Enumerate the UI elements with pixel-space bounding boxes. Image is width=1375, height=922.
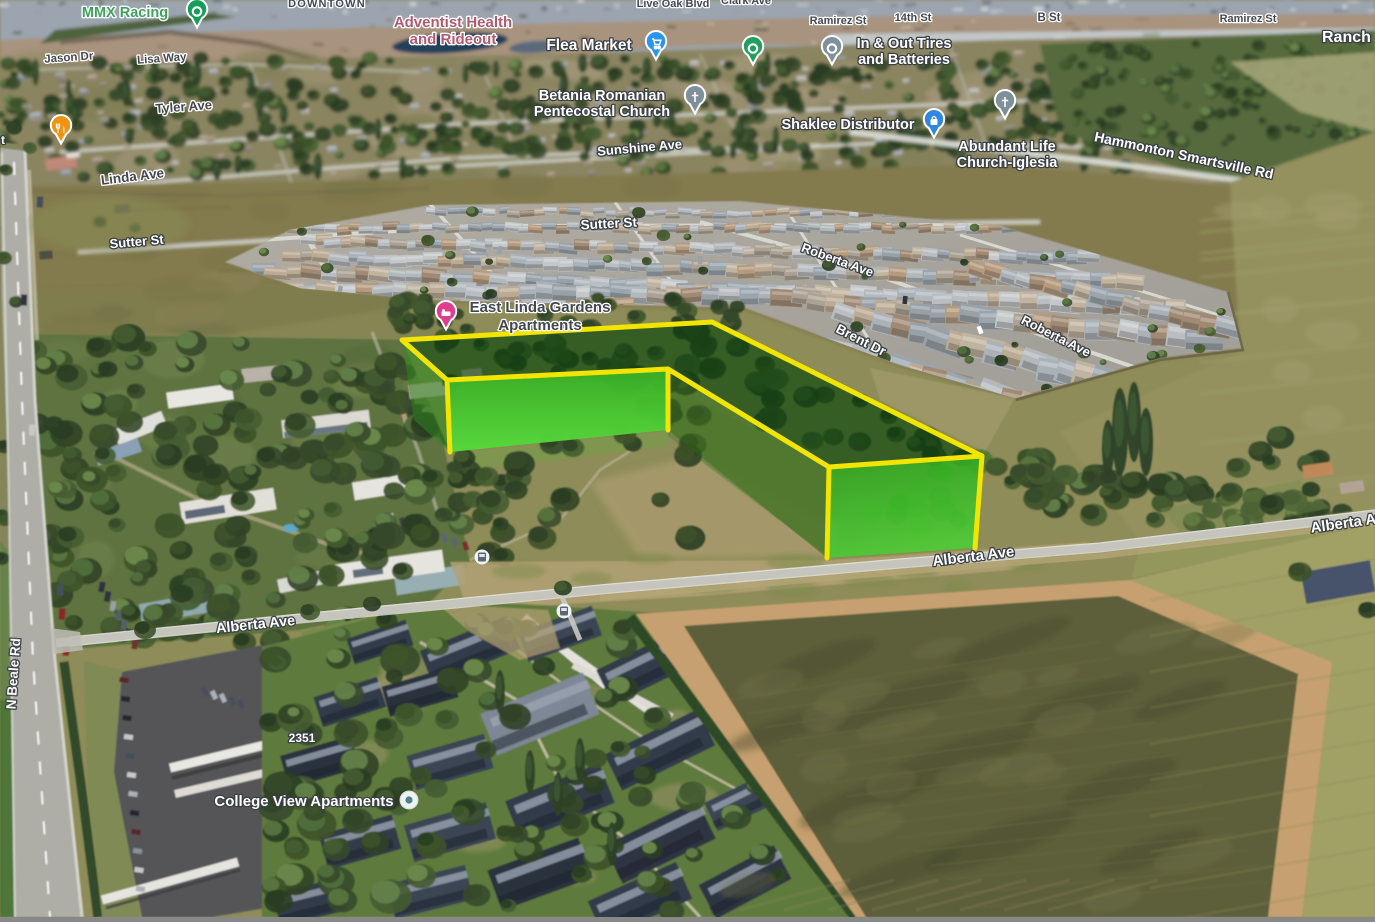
svg-text:College View Apartments: College View Apartments: [214, 793, 393, 810]
svg-text:and Batteries: and Batteries: [858, 52, 950, 68]
svg-text:14th St: 14th St: [895, 12, 932, 24]
svg-text:Apartments: Apartments: [498, 317, 581, 334]
svg-text:MMX Racing: MMX Racing: [82, 5, 168, 21]
svg-text:2351: 2351: [289, 731, 316, 745]
svg-text:DOWNTOWN: DOWNTOWN: [288, 0, 366, 10]
svg-text:Betania Romanian: Betania Romanian: [539, 88, 666, 104]
svg-text:Sutter St: Sutter St: [580, 215, 637, 233]
svg-text:East Linda Gardens: East Linda Gardens: [470, 299, 611, 316]
svg-text:In & Out Tires: In & Out Tires: [857, 36, 952, 52]
svg-text:t: t: [1, 133, 5, 147]
svg-text:Ramirez St: Ramirez St: [1220, 13, 1277, 25]
svg-text:Adventist Health: Adventist Health: [394, 14, 512, 31]
svg-text:Abundant Life: Abundant Life: [958, 139, 1055, 155]
svg-text:Ramirez St: Ramirez St: [810, 15, 867, 27]
svg-text:Flea Market: Flea Market: [546, 37, 631, 54]
svg-text:Clark Ave: Clark Ave: [721, 0, 771, 7]
svg-text:B St: B St: [1038, 12, 1061, 24]
svg-text:and Rideout: and Rideout: [410, 31, 497, 48]
svg-text:Live Oak Blvd: Live Oak Blvd: [637, 0, 710, 10]
svg-text:Pentecostal Church: Pentecostal Church: [534, 104, 670, 120]
svg-text:Ranch M: Ranch M: [1322, 29, 1375, 46]
svg-text:Shaklee Distributor: Shaklee Distributor: [782, 117, 915, 133]
svg-text:Church-Iglesia: Church-Iglesia: [957, 155, 1059, 171]
